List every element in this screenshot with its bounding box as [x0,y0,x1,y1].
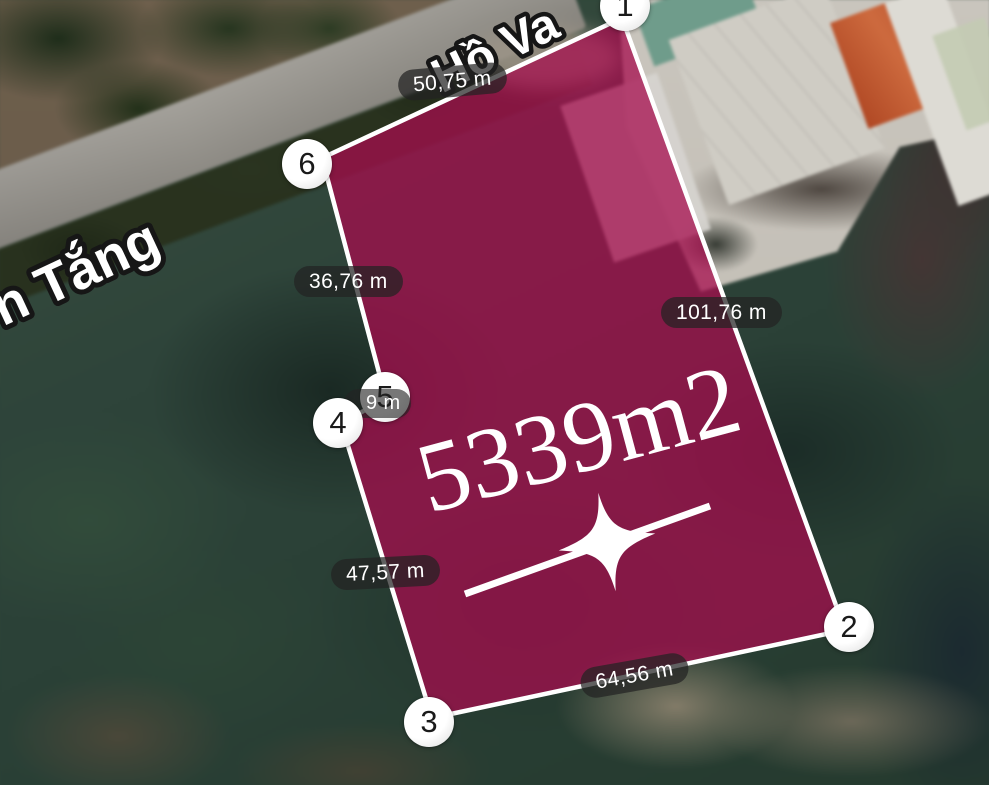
plot-polygon[interactable] [322,18,845,718]
vertex-marker-6[interactable]: 6 [282,139,332,189]
plot-overlay: Hồ Va n Tắng 5339m2 [0,0,989,785]
vertex-marker-3[interactable]: 3 [404,697,454,747]
measurement-label-edge-3-4: 47,57 m [330,554,440,591]
vertex-marker-2[interactable]: 2 [824,602,874,652]
vertex-marker-4[interactable]: 4 [313,398,363,448]
map-canvas[interactable]: Hồ Va n Tắng 5339m2 50,75 m 36,76 m 101,… [0,0,989,785]
measurement-label-edge-5-6: 36,76 m [294,266,403,297]
street-name-left: n Tắng [0,208,168,337]
measurement-label-edge-1-2: 101,76 m [661,297,782,328]
